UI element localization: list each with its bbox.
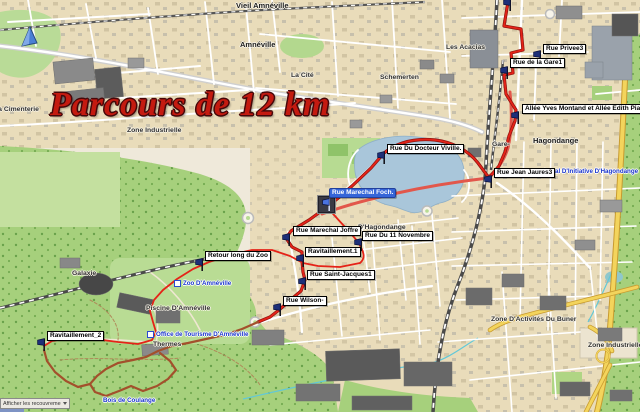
place-label: La Cimenterie [0, 106, 39, 113]
map-application-window: Vieil AmnévilleAmnévilleLa CitéLes Acaci… [0, 0, 640, 412]
waypoint-flag[interactable] [318, 196, 335, 213]
poi-label: Local D'Initiative D'Hagondange [544, 168, 638, 175]
flag-icon [377, 151, 386, 164]
waypoint-flag[interactable] [503, 0, 513, 11]
waypoint-label[interactable]: Rue Du Docteur Viville. [387, 144, 464, 154]
place-label: Amnéville [240, 40, 275, 49]
flag-icon [273, 303, 282, 316]
flag-icon [282, 233, 291, 246]
place-label: Zone D'Activités Du Buner [491, 316, 576, 323]
waypoint-label[interactable]: Rue de la Gare1 [510, 58, 565, 68]
flag-icon [503, 0, 512, 11]
waypoint-flag[interactable] [273, 303, 283, 316]
map-title: Parcours de 12 km [50, 86, 331, 124]
place-label: D'Hagondange [358, 224, 406, 231]
flag-icon [195, 258, 204, 271]
place-label: La Cité [291, 72, 314, 79]
poi-icon [147, 331, 154, 338]
flag-icon [484, 175, 493, 188]
place-label: Piscine D'Amnéville [146, 305, 210, 312]
flag-icon [511, 111, 520, 124]
place-label: Zone Industrielle [127, 127, 181, 134]
place-label: Thermes [153, 341, 181, 348]
waypoint-flag[interactable] [511, 111, 521, 124]
flag-icon [296, 254, 305, 267]
flag-icon [298, 277, 307, 290]
poi-label-text: Bois de Coulange [103, 397, 155, 404]
waypoint-label[interactable]: Rue Marechal Foch. [329, 188, 396, 198]
chevron-down-icon [63, 402, 67, 405]
waypoint-flag[interactable] [377, 151, 387, 164]
poi-label: Zoo D'Amnéville [174, 280, 231, 287]
poi-label: Office de Tourisme D'Amnéville [147, 331, 248, 338]
overlays-dropdown-label: Afficher les recouvrements [3, 401, 61, 407]
waypoint-flag[interactable] [500, 66, 510, 79]
waypoint-flag[interactable] [195, 258, 205, 271]
waypoint-label[interactable]: Rue Marechal Joffre [293, 226, 361, 236]
place-label: Hagondange [533, 136, 578, 145]
waypoint-label[interactable]: Rue Jean Jaures3 [494, 168, 555, 178]
flag-icon [500, 66, 509, 79]
waypoint-label[interactable]: Rue Du 11 Novembre [362, 231, 433, 241]
poi-label-text: Zoo D'Amnéville [183, 280, 231, 287]
waypoint-label[interactable]: Ravitaillement.1 [305, 247, 361, 257]
waypoint-label[interactable]: Rue Privee3 [543, 44, 586, 54]
waypoint-label[interactable]: Rue Wilson- [283, 296, 327, 306]
waypoint-label[interactable]: Retour long du Zoo [205, 251, 271, 261]
flag-icon [37, 338, 46, 351]
waypoint-flag[interactable] [282, 233, 292, 246]
waypoint-label[interactable]: Rue Saint-Jacques1 [307, 270, 375, 280]
place-label: Schemerten [380, 74, 419, 81]
place-label: Vieil Amnéville [236, 1, 289, 10]
waypoint-label[interactable]: Ravitaillement_2 [47, 331, 104, 341]
waypoint-label[interactable]: Allée Yves Montand et Allée Edith Piaf3 [522, 104, 640, 114]
poi-icon [174, 280, 181, 287]
poi-label-text: Local D'Initiative D'Hagondange [544, 168, 638, 175]
poi-label-text: Office de Tourisme D'Amnéville [156, 331, 248, 338]
waypoint-flag[interactable] [37, 338, 47, 351]
overlays-dropdown[interactable]: Afficher les recouvrements [0, 398, 70, 409]
waypoint-flag[interactable] [484, 175, 494, 188]
place-label: Les Acacias [446, 44, 485, 51]
flag-icon [322, 198, 331, 211]
place-label: Zone Industrielle [588, 342, 640, 349]
place-label: Galaxie [72, 270, 96, 277]
poi-label: Bois de Coulange [103, 397, 155, 404]
place-label: Gare- [492, 141, 510, 148]
